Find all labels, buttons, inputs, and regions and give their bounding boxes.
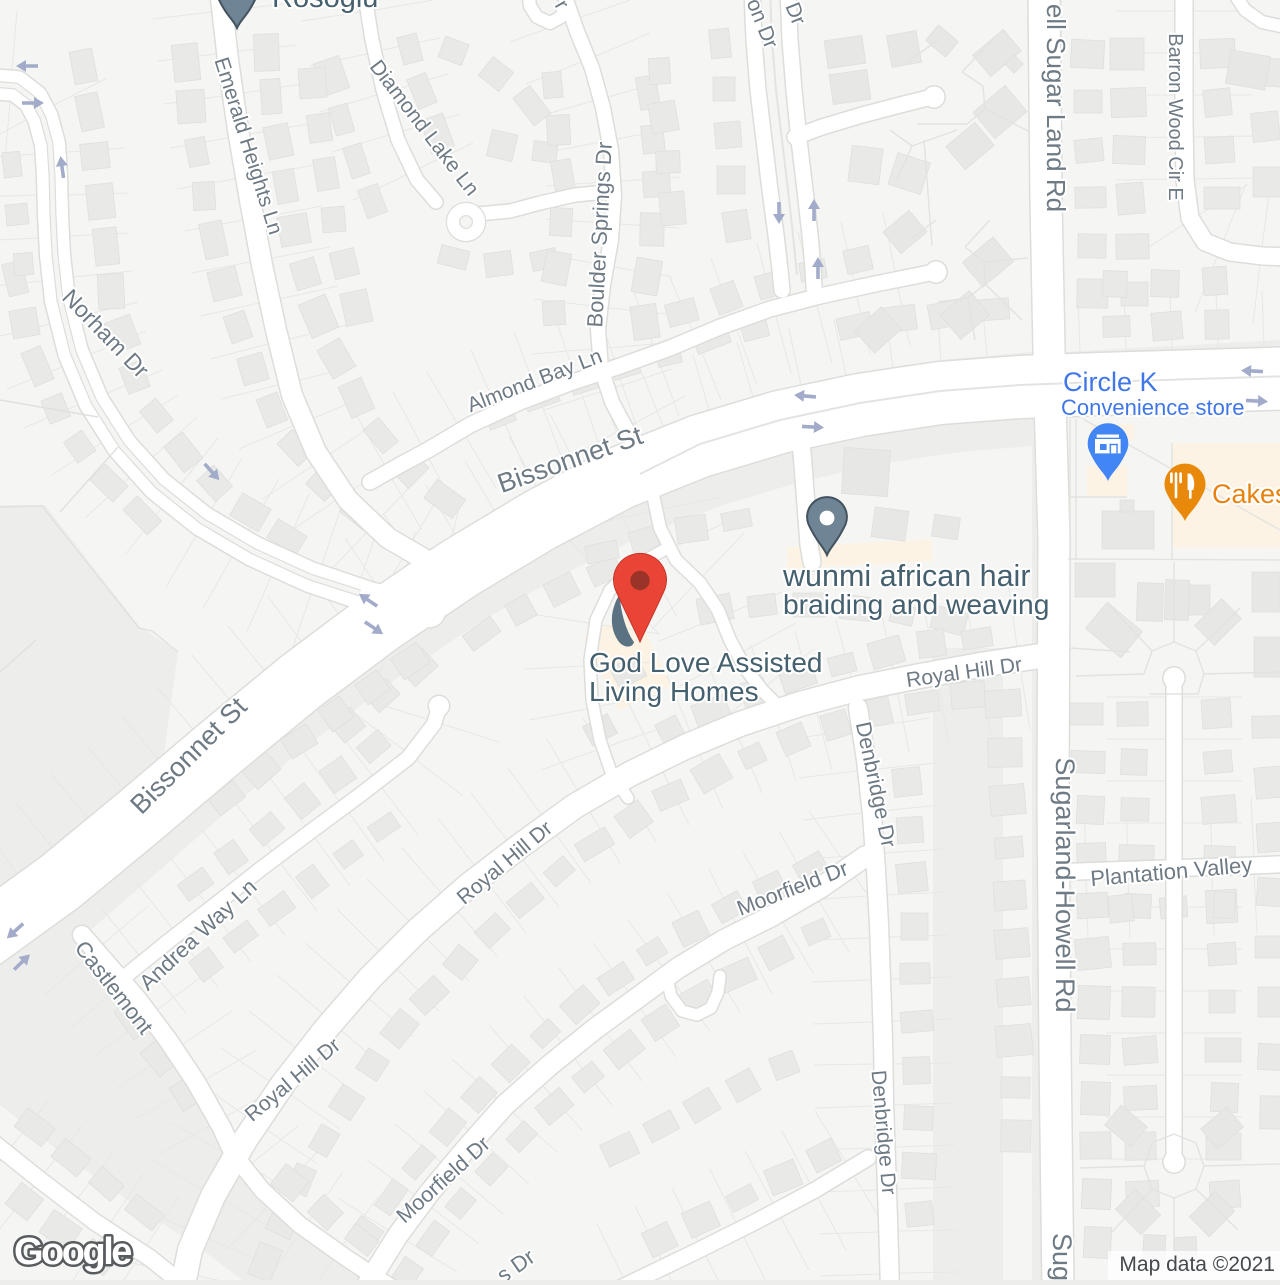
svg-text:Sugarland-How: Sugarland-How — [1047, 1233, 1077, 1280]
svg-text:Circle K: Circle K — [1063, 367, 1158, 397]
svg-text:Map data ©2021: Map data ©2021 — [1119, 1253, 1275, 1276]
svg-text:God Love Assisted: God Love Assisted — [589, 647, 822, 678]
svg-text:Google: Google — [14, 1231, 131, 1273]
svg-text:Living Homes: Living Homes — [589, 676, 759, 707]
svg-text:ell Sugar Land Rd: ell Sugar Land Rd — [1041, 4, 1071, 212]
svg-text:Cakes: Cakes — [1212, 479, 1280, 509]
svg-text:Barron Wood Cir E: Barron Wood Cir E — [1164, 33, 1186, 200]
svg-text:Rosoglu: Rosoglu — [272, 0, 378, 14]
svg-text:Convenience store: Convenience store — [1061, 395, 1244, 420]
svg-text:braiding and weaving: braiding and weaving — [783, 588, 1049, 620]
svg-text:Sugarland-Howell Rd: Sugarland-Howell Rd — [1050, 757, 1080, 1012]
